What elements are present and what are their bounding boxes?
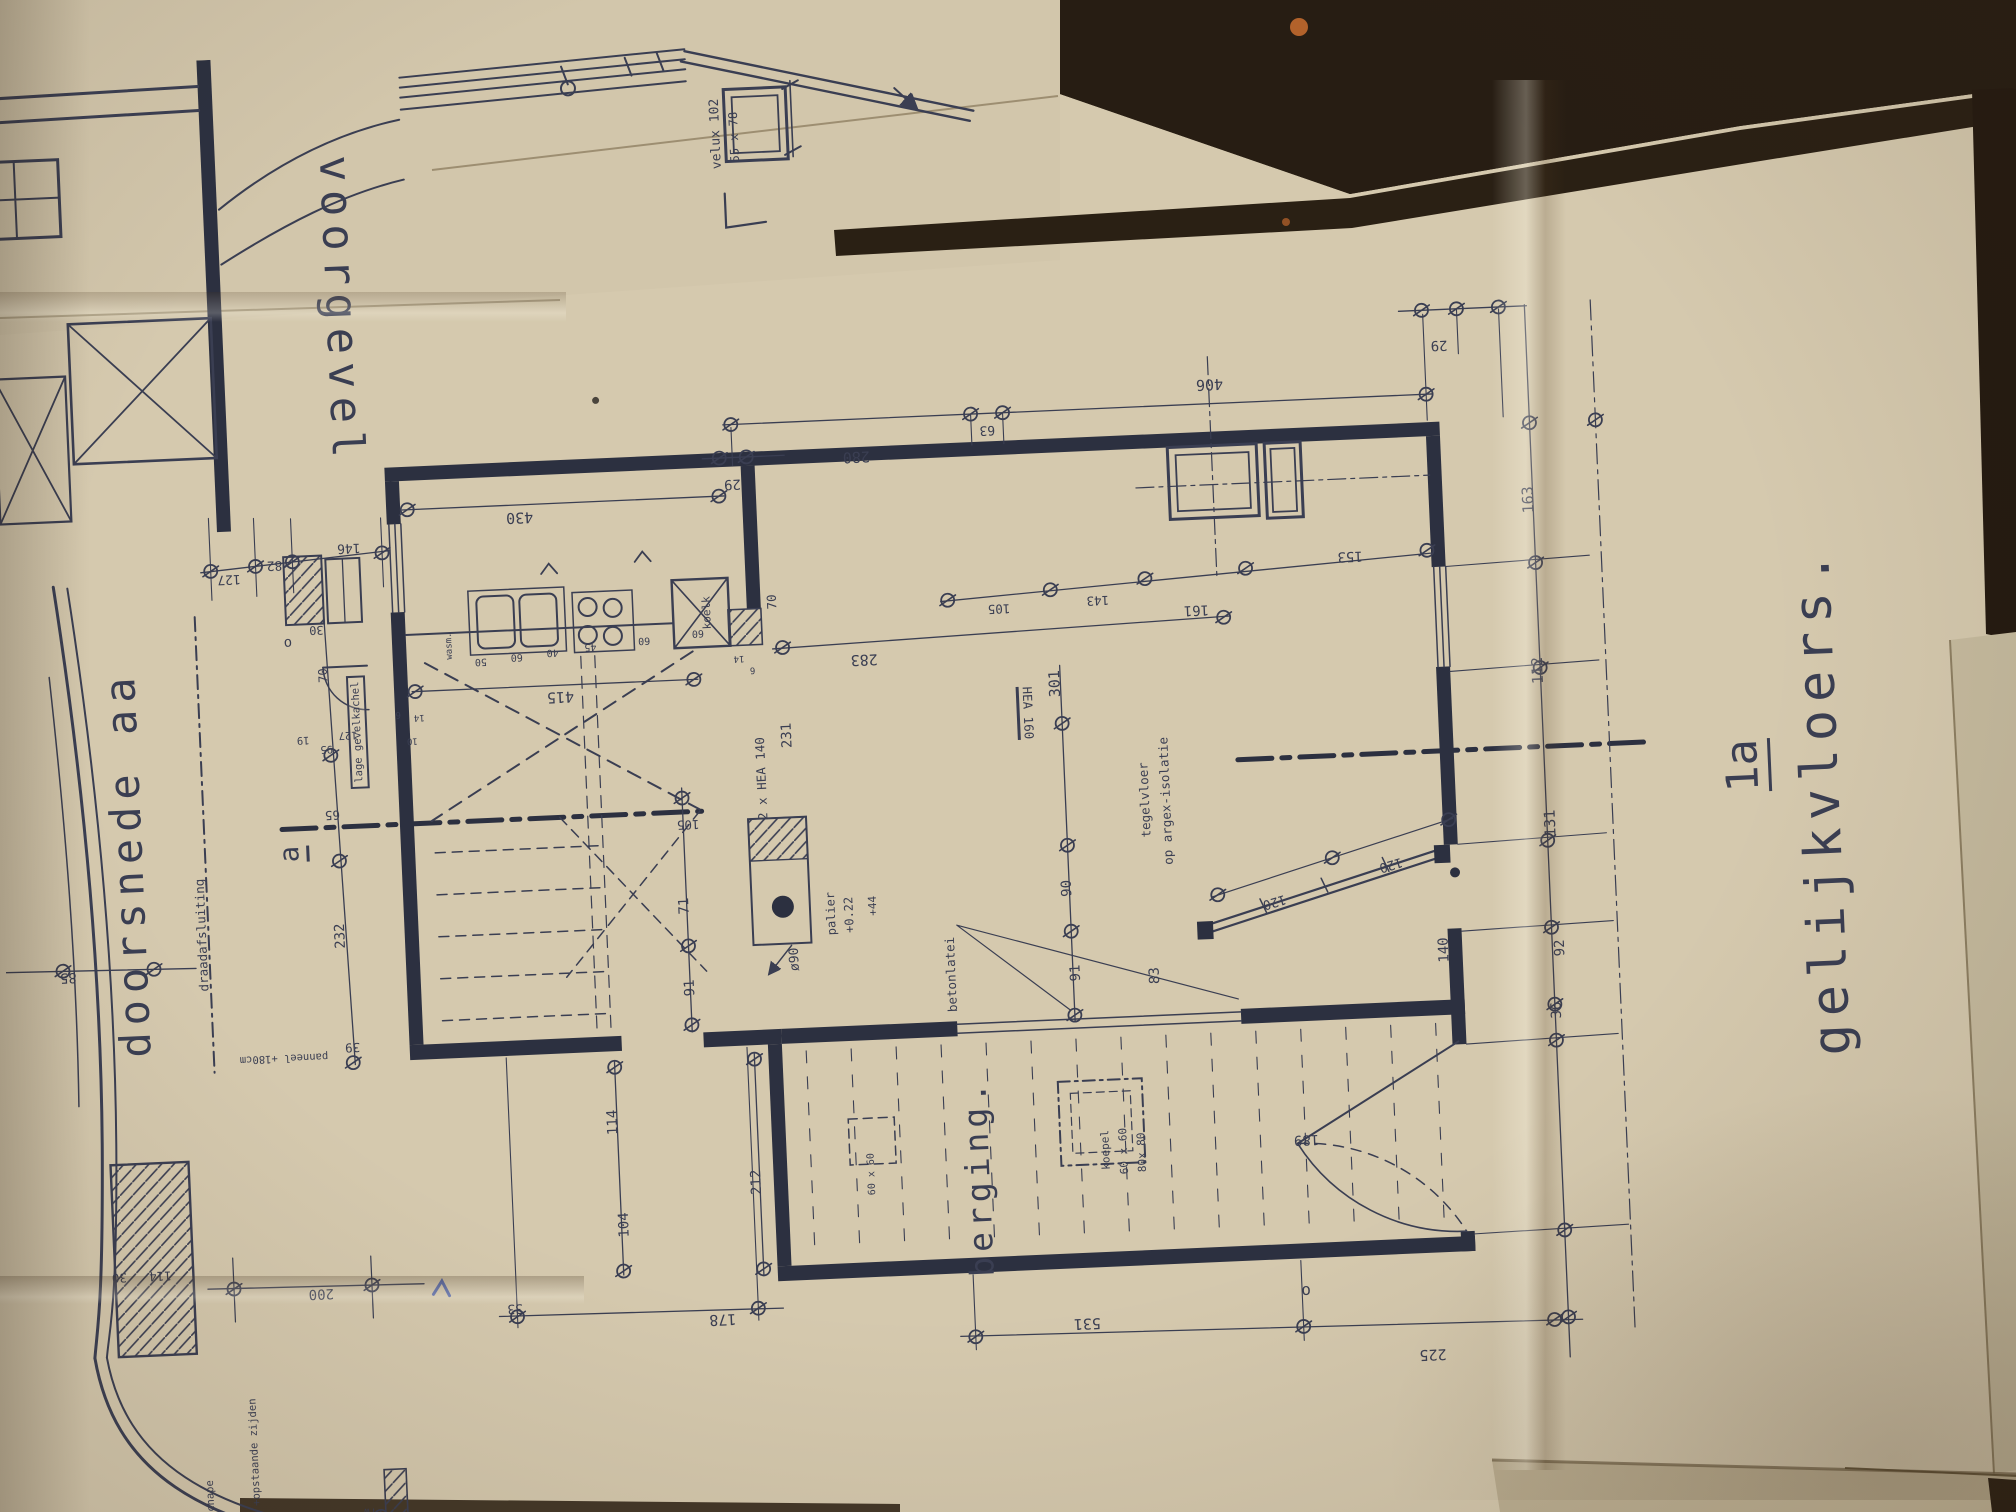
dim-127-b: 127	[338, 729, 357, 741]
sheet-ref-1a: 1a	[1719, 738, 1772, 793]
dim-104: 104	[617, 1212, 633, 1238]
ann-koelkast: koelk	[700, 596, 713, 630]
dim-120-a: 120	[1261, 891, 1287, 911]
ann-beam-hea140: 2 x HEA 140	[753, 737, 770, 820]
section-marker-a: a	[276, 845, 310, 863]
ann-draadafsluiting: draadafsluiting	[193, 878, 211, 991]
dim-39: 39	[345, 1041, 361, 1055]
dim-140: 140	[1437, 937, 1453, 963]
ann-wasmachine: wasm.	[445, 632, 456, 659]
dim-127-a: 127	[217, 571, 241, 586]
marker-o-bottom: o	[1301, 1282, 1311, 1299]
ann-koepel-6060: 60 x 60	[1117, 1128, 1131, 1175]
ann-panneel-180: panneel +180cm	[240, 1050, 329, 1065]
dim-83: 83	[1148, 967, 1163, 984]
dim-63: 63	[979, 422, 995, 436]
ann-skylight-6060: 60 x 60	[866, 1153, 878, 1196]
dim-531: 531	[1073, 1314, 1101, 1331]
dim-40: 40	[546, 646, 558, 657]
dim-91-b: 91	[1068, 964, 1083, 981]
ann-beam-hea160: HEA 160	[1015, 686, 1035, 739]
ann-koepel-8080: 80x 80	[1135, 1132, 1148, 1172]
dim-406: 406	[1196, 375, 1224, 392]
dim-283: 283	[850, 651, 878, 668]
ann-tegelvloer: tegelvloer	[1136, 762, 1152, 838]
dim-146: 146	[337, 540, 361, 555]
dim-161: 161	[1183, 602, 1209, 618]
dim-29-b: 29	[1430, 337, 1447, 352]
ann-koepel: koepel	[1099, 1130, 1112, 1170]
dim-82: 82	[266, 557, 282, 571]
dim-430: 430	[506, 508, 534, 525]
ann-diameter-90: ø90	[788, 947, 803, 971]
ann-regenwater: rw	[364, 1505, 376, 1512]
dim-14-b: 14	[414, 711, 425, 721]
marker-o-left: o	[283, 636, 292, 651]
ann-opstaande-zijden: 0,2 mm +opstaande zijden	[247, 1398, 265, 1512]
dim-60-c: 60	[692, 627, 704, 638]
dim-153: 153	[1337, 548, 1363, 564]
dim-301: 301	[1047, 670, 1064, 698]
dim-105-b: 105	[677, 818, 700, 832]
dim-178: 178	[709, 1310, 737, 1327]
photographed-blueprint-scene: voorgeveldoorsnede aagelijkvloers.1aberg…	[0, 0, 2016, 1512]
title-doorsnede-aa: doorsnede aa	[98, 670, 159, 1059]
dim-91-a: 91	[683, 979, 698, 996]
dim-45: 45	[584, 640, 596, 651]
dim-415: 415	[547, 688, 575, 705]
dim-120-b: 120	[1377, 854, 1403, 874]
ann-velux-size: 55 x 78	[727, 112, 742, 163]
bottom-right-shadow	[1380, 1080, 2016, 1500]
ann-palier: palier	[824, 892, 838, 936]
dim-90: 90	[1060, 880, 1075, 897]
ann-argex-isolatie: op argex-isolatie	[1156, 737, 1175, 865]
dim-6-b: 6	[395, 709, 401, 719]
dim-189: 189	[1294, 1131, 1320, 1147]
title-gelijkvloers: gelijkvloers.	[1784, 544, 1861, 1057]
dim-280: 280	[842, 448, 870, 465]
ann-betonlatei: betonlatei	[943, 937, 959, 1013]
dim-71: 71	[677, 897, 692, 914]
left-edge-shadow	[0, 0, 90, 1512]
dim-30-b: 30	[309, 623, 324, 636]
dim-105-a: 105	[988, 602, 1011, 616]
dim-143: 143	[1086, 594, 1109, 608]
dim-70-b: 70	[765, 594, 779, 610]
dim-70-a: 70	[317, 668, 330, 683]
dim-29-a: 29	[724, 476, 741, 491]
dim-60-b: 60	[638, 634, 650, 645]
dim-50: 50	[475, 655, 487, 666]
ann-velux: velux 102	[708, 98, 725, 169]
ann-palier-niveau: +0.22	[842, 897, 856, 934]
dim-232: 232	[333, 923, 349, 949]
dim-10: 10	[407, 735, 418, 745]
dim-114-b: 114	[605, 1109, 621, 1135]
dim-14-a: 14	[733, 652, 744, 662]
dim-60-a: 60	[510, 651, 522, 662]
dim-6-a: 6	[750, 664, 756, 674]
ann-vloer-chape: vloer + chape	[205, 1480, 220, 1512]
dim-19: 19	[297, 734, 310, 746]
dim-231: 231	[780, 722, 796, 748]
dim-95: 95	[320, 743, 333, 755]
ann-niveau-44: +44	[867, 896, 879, 916]
dim-212: 212	[749, 1169, 765, 1195]
dim-65: 65	[325, 808, 341, 822]
title-berging: berging.	[957, 1077, 1000, 1277]
